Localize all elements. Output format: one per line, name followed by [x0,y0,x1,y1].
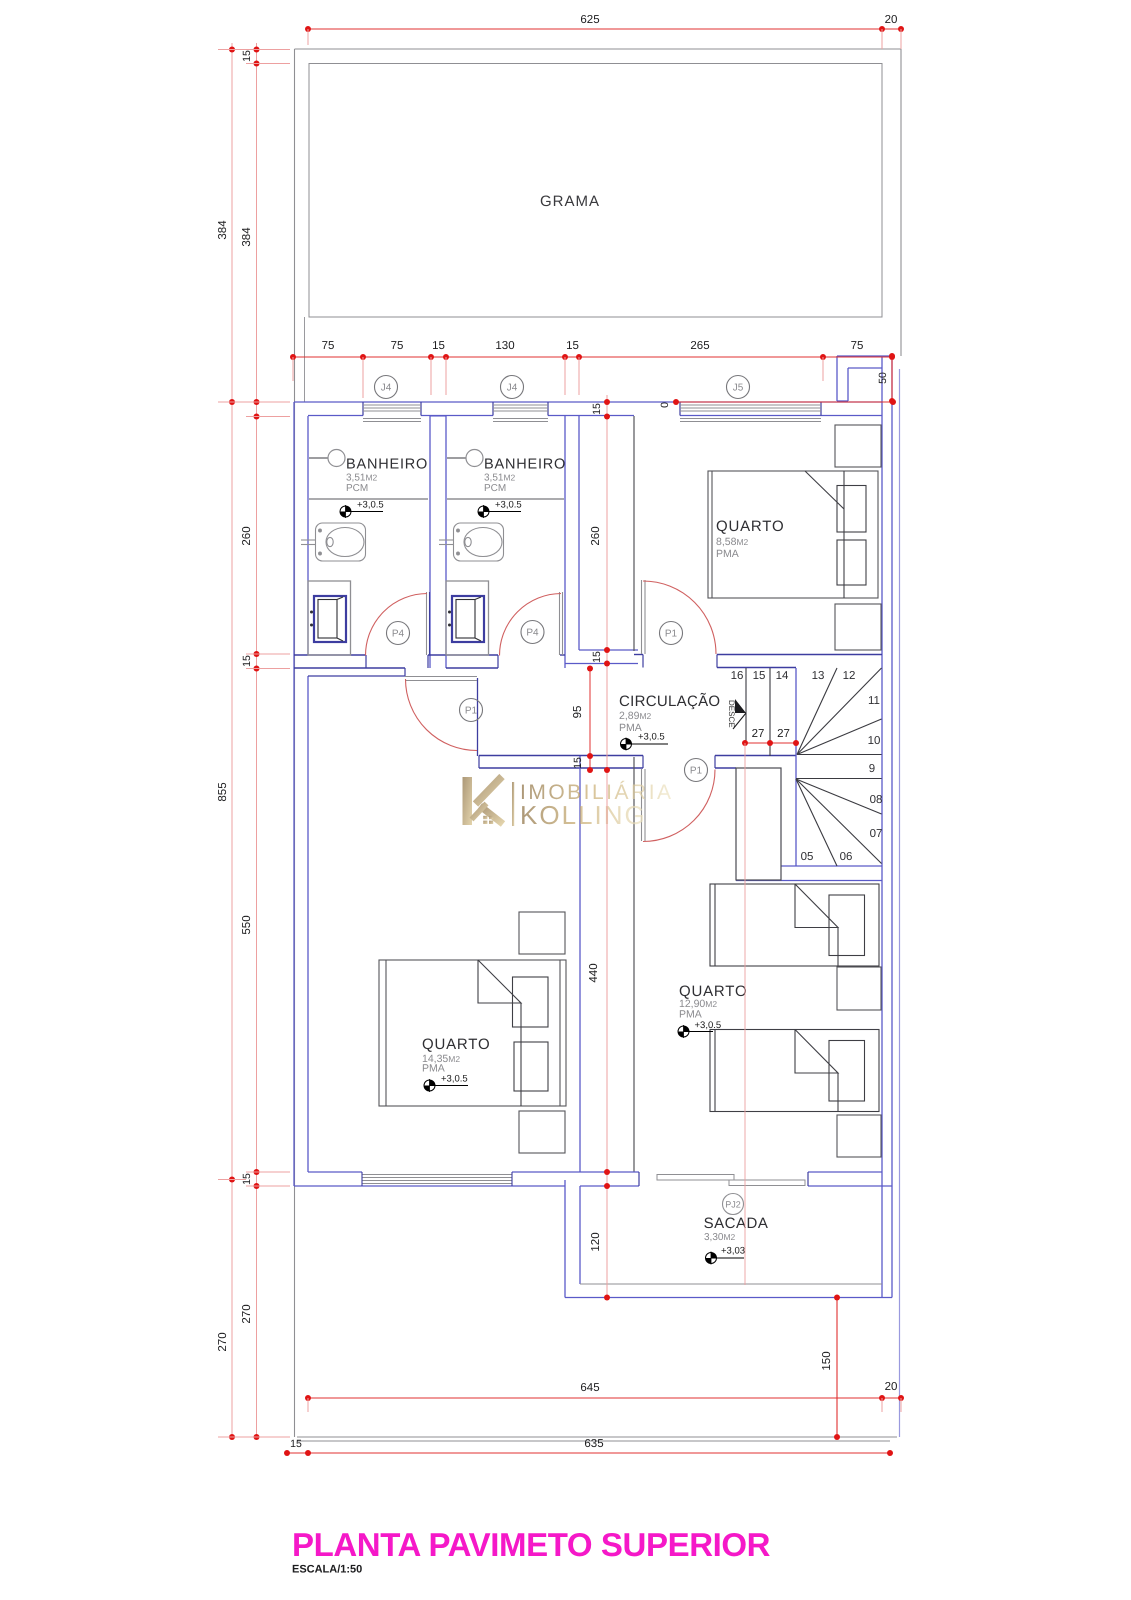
svg-text:PMA: PMA [679,1009,702,1021]
svg-text:P1: P1 [665,629,678,640]
svg-text:260: 260 [590,526,602,545]
svg-text:440: 440 [588,963,600,982]
svg-text:PJ2: PJ2 [725,1200,741,1210]
svg-text:8,58M2: 8,58M2 [716,536,749,548]
svg-text:10: 10 [868,735,881,747]
svg-text:27: 27 [752,728,765,740]
svg-text:150: 150 [821,1351,833,1370]
svg-text:384: 384 [217,220,229,240]
svg-text:27: 27 [777,728,790,740]
svg-text:15: 15 [290,1438,302,1450]
svg-text:625: 625 [580,14,599,26]
svg-text:BANHEIRO: BANHEIRO [346,457,428,473]
svg-text:75: 75 [322,340,335,352]
svg-text:+3,03: +3,03 [721,1246,745,1257]
svg-text:+3,0.5: +3,0.5 [695,1020,722,1031]
svg-text:95: 95 [572,706,584,719]
svg-text:+3,0.5: +3,0.5 [441,1074,468,1085]
svg-text:P1: P1 [465,706,478,717]
svg-text:3,51M2: 3,51M2 [484,473,516,484]
svg-text:P4: P4 [526,628,539,639]
svg-text:20: 20 [885,14,898,26]
svg-text:06: 06 [840,851,853,863]
svg-text:13: 13 [812,670,825,682]
svg-text:+3,0.5: +3,0.5 [357,500,384,511]
svg-text:BANHEIRO: BANHEIRO [484,457,566,473]
svg-text:+3,0.5: +3,0.5 [638,732,665,743]
svg-text:07: 07 [870,828,883,840]
svg-text:+3,0.5: +3,0.5 [495,500,522,511]
svg-text:15: 15 [241,50,253,62]
svg-text:QUARTO: QUARTO [716,518,784,535]
svg-text:2,89M2: 2,89M2 [619,710,652,722]
svg-text:12: 12 [843,670,856,682]
svg-text:15: 15 [572,757,584,769]
svg-text:J4: J4 [507,383,518,394]
svg-text:384: 384 [241,227,253,247]
svg-text:3,51M2: 3,51M2 [346,473,378,484]
svg-text:PCM: PCM [484,483,506,494]
svg-text:16: 16 [731,670,744,682]
svg-text:GRAMA: GRAMA [540,193,600,210]
svg-text:15: 15 [591,651,603,663]
svg-text:J5: J5 [733,383,744,394]
svg-text:CIRCULAÇÃO: CIRCULAÇÃO [619,692,720,710]
svg-text:KOLLING: KOLLING [520,800,647,830]
svg-text:P1: P1 [690,766,703,777]
svg-text:15: 15 [241,1173,253,1185]
svg-text:0: 0 [659,402,671,408]
svg-text:15: 15 [753,670,766,682]
svg-text:ESCALA/1:50: ESCALA/1:50 [292,1564,362,1576]
svg-text:15: 15 [241,655,253,667]
svg-text:15: 15 [566,340,579,352]
svg-text:120: 120 [590,1232,602,1251]
svg-text:05: 05 [801,851,814,863]
svg-text:260: 260 [241,526,253,545]
svg-text:PMA: PMA [716,548,739,560]
svg-text:270: 270 [217,1332,229,1351]
svg-text:130: 130 [495,340,514,352]
svg-text:PLANTA PAVIMETO SUPERIOR: PLANTA PAVIMETO SUPERIOR [292,1526,771,1563]
svg-text:270: 270 [241,1304,253,1323]
svg-text:11: 11 [868,695,880,707]
svg-text:15: 15 [591,403,603,415]
svg-text:635: 635 [584,1438,603,1450]
svg-text:QUARTO: QUARTO [422,1036,490,1053]
svg-text:9: 9 [869,763,875,775]
svg-text:14: 14 [776,670,789,682]
svg-text:3,30M2: 3,30M2 [704,1232,736,1243]
svg-text:PCM: PCM [346,483,368,494]
svg-text:75: 75 [851,340,864,352]
svg-text:P4: P4 [392,629,405,640]
svg-text:645: 645 [580,1382,599,1394]
svg-text:855: 855 [217,782,229,801]
svg-text:DESCE: DESCE [727,700,736,728]
svg-text:265: 265 [690,340,709,352]
svg-text:SACADA: SACADA [704,1215,769,1232]
svg-text:550: 550 [241,915,253,934]
svg-text:75: 75 [391,340,404,352]
svg-text:08: 08 [870,794,883,806]
svg-text:50: 50 [877,372,889,384]
svg-text:15: 15 [432,340,445,352]
svg-text:20: 20 [885,1381,898,1393]
svg-text:J4: J4 [381,383,392,394]
